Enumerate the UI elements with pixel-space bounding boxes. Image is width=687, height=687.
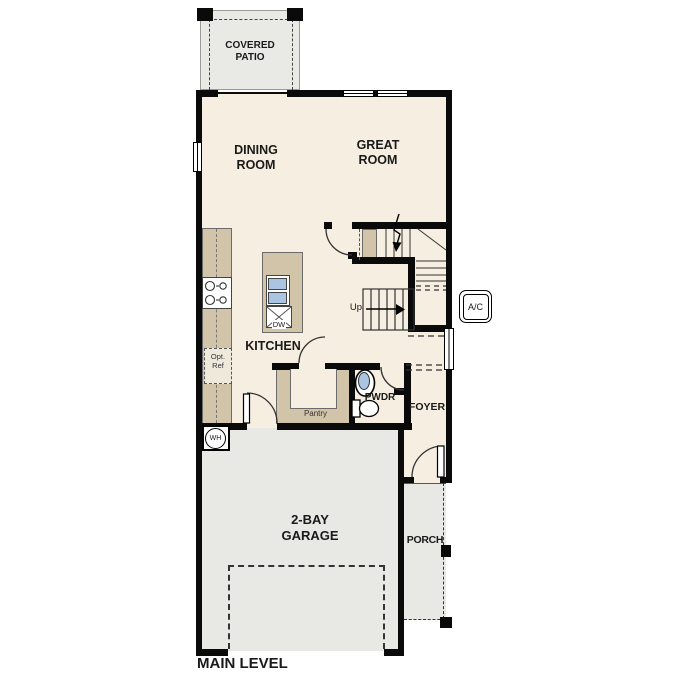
water-heater-label: WH bbox=[210, 435, 222, 442]
cooktop bbox=[202, 277, 232, 309]
wall-stair-l-vertical bbox=[408, 257, 415, 332]
wall-right bbox=[446, 90, 452, 483]
wall-garage-bottom-right bbox=[384, 649, 404, 656]
pantry-label: Pantry bbox=[276, 409, 355, 419]
porch-post-mid bbox=[441, 545, 451, 557]
window-great-room-1 bbox=[343, 90, 374, 97]
kitchen-counter bbox=[202, 228, 232, 424]
foyer-floor-area bbox=[404, 430, 446, 483]
dishwasher-label: DW bbox=[266, 311, 292, 329]
ac-unit: A/C bbox=[459, 290, 492, 323]
floor-plan: WH A/C bbox=[0, 0, 687, 687]
wall-stair-l-lower bbox=[408, 325, 446, 332]
water-heater-circle: WH bbox=[205, 428, 226, 449]
porch-post-corner bbox=[440, 617, 452, 628]
ac-unit-inner: A/C bbox=[463, 294, 489, 320]
patio-slider-door bbox=[218, 92, 287, 94]
wall-stair-top-stub bbox=[324, 222, 332, 229]
porch-floor-area bbox=[404, 483, 446, 620]
optional-fridge-label: Opt. Ref bbox=[204, 352, 232, 370]
porch-dashed-bottom bbox=[404, 619, 445, 620]
ac-label: A/C bbox=[468, 302, 483, 312]
garage-label: 2-BAY GARAGE bbox=[250, 512, 370, 543]
wall-top-mid bbox=[287, 90, 343, 97]
great-room-label: GREAT ROOM bbox=[328, 138, 428, 168]
pwdr-label: PWDR bbox=[358, 392, 402, 404]
counter-centerline bbox=[216, 229, 217, 423]
plan-title: MAIN LEVEL bbox=[197, 655, 347, 673]
wall-left bbox=[196, 90, 202, 656]
wall-foyer-threshold-left bbox=[404, 477, 414, 483]
patio-post-left bbox=[197, 8, 213, 21]
kitchen-label: KITCHEN bbox=[233, 339, 313, 354]
window-dining-room bbox=[193, 142, 202, 172]
porch-label: PORCH bbox=[402, 534, 448, 547]
stair-closet bbox=[362, 229, 377, 260]
foyer-label: FOYER bbox=[406, 401, 448, 414]
dining-room-label: DINING ROOM bbox=[206, 143, 306, 173]
pantry-interior bbox=[290, 369, 337, 409]
sink-basin-top bbox=[268, 278, 287, 290]
covered-patio-label: COVERED PATIO bbox=[205, 40, 295, 64]
wall-stair-l-horizontal bbox=[352, 257, 414, 264]
sink-basin-bottom bbox=[268, 292, 287, 304]
window-great-room-2 bbox=[377, 90, 408, 97]
patio-post-right bbox=[287, 8, 303, 21]
wall-garage-top-2 bbox=[277, 423, 412, 430]
garage-door-dashed-outline bbox=[228, 565, 385, 649]
window-foyer bbox=[444, 328, 454, 370]
up-label: Up bbox=[340, 302, 362, 313]
wall-stair-top bbox=[352, 222, 452, 229]
stair-closet-dashed bbox=[359, 229, 360, 260]
wall-foyer-threshold-right bbox=[440, 477, 452, 483]
